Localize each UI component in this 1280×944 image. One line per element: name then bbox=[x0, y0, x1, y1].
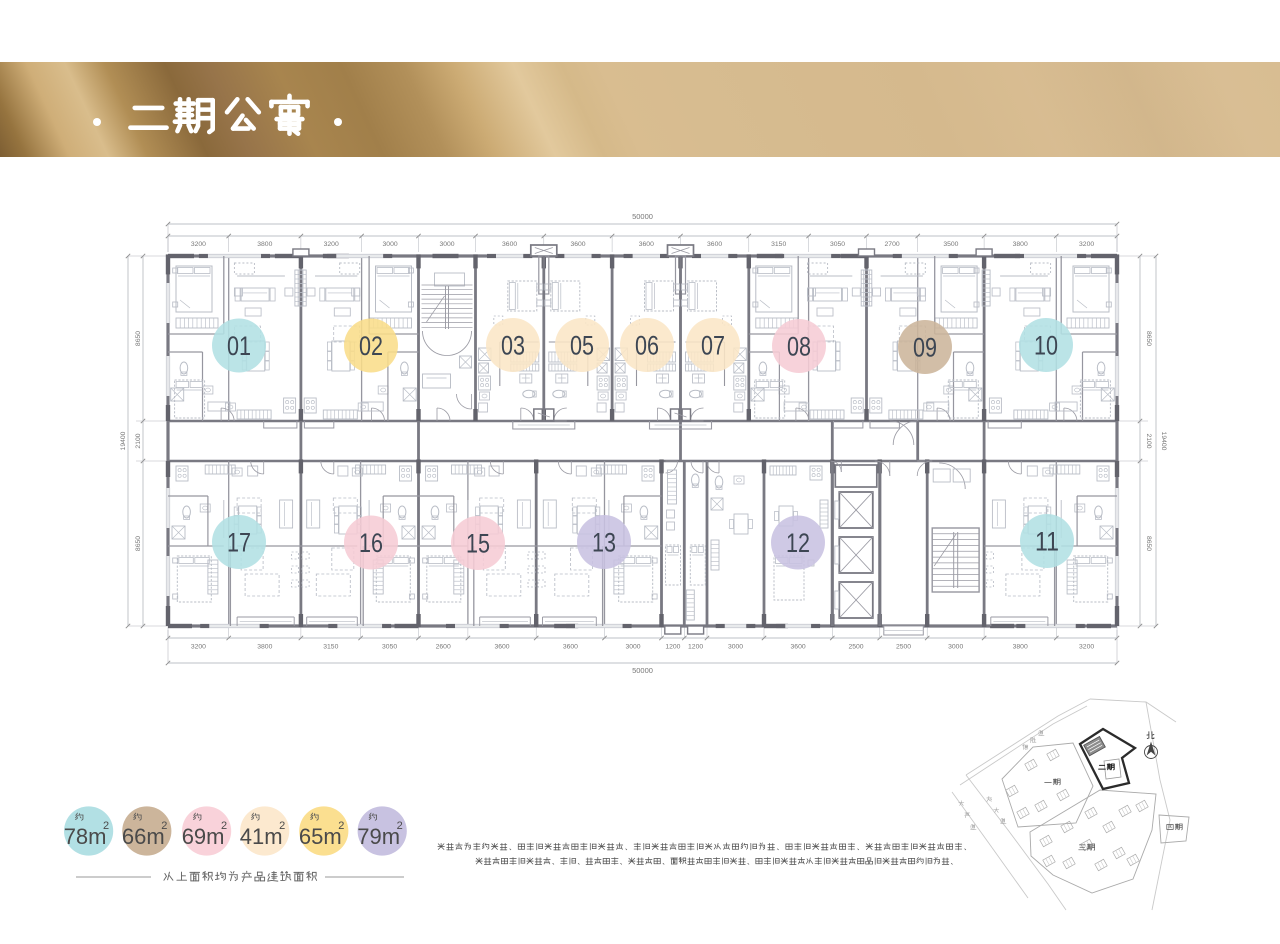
svg-text:8650: 8650 bbox=[135, 536, 142, 551]
svg-text:3200: 3200 bbox=[324, 241, 339, 248]
svg-text:3600: 3600 bbox=[494, 644, 509, 651]
svg-text:2: 2 bbox=[279, 820, 285, 832]
svg-text:2600: 2600 bbox=[436, 644, 451, 651]
svg-text:3050: 3050 bbox=[830, 241, 845, 248]
svg-text:2100: 2100 bbox=[1145, 433, 1152, 448]
svg-text:3800: 3800 bbox=[1013, 644, 1028, 651]
svg-text:2: 2 bbox=[221, 820, 227, 832]
svg-text:15: 15 bbox=[466, 529, 490, 559]
svg-text:2: 2 bbox=[397, 820, 403, 832]
svg-text:8650: 8650 bbox=[135, 331, 142, 346]
svg-text:3800: 3800 bbox=[257, 644, 272, 651]
svg-text:10: 10 bbox=[1034, 331, 1058, 361]
svg-text:3600: 3600 bbox=[502, 241, 517, 248]
svg-text:1200: 1200 bbox=[665, 644, 680, 651]
svg-text:3150: 3150 bbox=[771, 241, 786, 248]
svg-text:41m: 41m bbox=[240, 824, 283, 849]
svg-text:3200: 3200 bbox=[191, 644, 206, 651]
svg-text:13: 13 bbox=[592, 528, 616, 558]
svg-text:3800: 3800 bbox=[257, 241, 272, 248]
svg-text:05: 05 bbox=[570, 331, 594, 361]
svg-text:11: 11 bbox=[1035, 527, 1059, 557]
svg-text:03: 03 bbox=[501, 331, 525, 361]
svg-text:07: 07 bbox=[701, 331, 725, 361]
svg-text:79m: 79m bbox=[357, 824, 400, 849]
svg-text:12: 12 bbox=[786, 528, 810, 558]
svg-text:3500: 3500 bbox=[943, 241, 958, 248]
svg-text:2500: 2500 bbox=[848, 644, 863, 651]
svg-text:3200: 3200 bbox=[191, 241, 206, 248]
svg-text:3000: 3000 bbox=[439, 241, 454, 248]
svg-text:2: 2 bbox=[338, 820, 344, 832]
svg-text:3000: 3000 bbox=[728, 644, 743, 651]
svg-text:2: 2 bbox=[103, 820, 109, 832]
svg-text:19400: 19400 bbox=[120, 431, 127, 450]
svg-text:2500: 2500 bbox=[896, 644, 911, 651]
svg-text:19400: 19400 bbox=[1160, 432, 1167, 451]
svg-text:3200: 3200 bbox=[1079, 644, 1094, 651]
svg-text:8650: 8650 bbox=[1145, 536, 1152, 551]
svg-text:3000: 3000 bbox=[948, 644, 963, 651]
svg-text:3600: 3600 bbox=[791, 644, 806, 651]
svg-text:65m: 65m bbox=[299, 824, 342, 849]
svg-text:3150: 3150 bbox=[323, 644, 338, 651]
svg-text:2100: 2100 bbox=[135, 433, 142, 448]
svg-text:01: 01 bbox=[227, 331, 251, 361]
svg-text:50000: 50000 bbox=[632, 212, 653, 221]
svg-text:3050: 3050 bbox=[382, 644, 397, 651]
svg-text:50000: 50000 bbox=[632, 666, 653, 675]
svg-text:2: 2 bbox=[161, 820, 167, 832]
svg-text:09: 09 bbox=[913, 333, 937, 363]
svg-text:3200: 3200 bbox=[1079, 241, 1094, 248]
svg-text:3600: 3600 bbox=[707, 241, 722, 248]
svg-text:16: 16 bbox=[359, 528, 383, 558]
svg-text:1200: 1200 bbox=[688, 644, 703, 651]
svg-text:3800: 3800 bbox=[1013, 241, 1028, 248]
svg-text:08: 08 bbox=[787, 332, 811, 362]
svg-text:3600: 3600 bbox=[563, 644, 578, 651]
svg-text:3000: 3000 bbox=[383, 241, 398, 248]
svg-text:3600: 3600 bbox=[570, 241, 585, 248]
svg-text:02: 02 bbox=[359, 331, 383, 361]
svg-text:06: 06 bbox=[635, 331, 659, 361]
svg-text:3600: 3600 bbox=[639, 241, 654, 248]
svg-text:3000: 3000 bbox=[625, 644, 640, 651]
svg-text:17: 17 bbox=[227, 528, 251, 558]
svg-text:66m: 66m bbox=[122, 824, 165, 849]
svg-text:78m: 78m bbox=[64, 824, 107, 849]
svg-text:8650: 8650 bbox=[1145, 331, 1152, 346]
svg-text:69m: 69m bbox=[182, 824, 225, 849]
svg-text:2700: 2700 bbox=[885, 241, 900, 248]
